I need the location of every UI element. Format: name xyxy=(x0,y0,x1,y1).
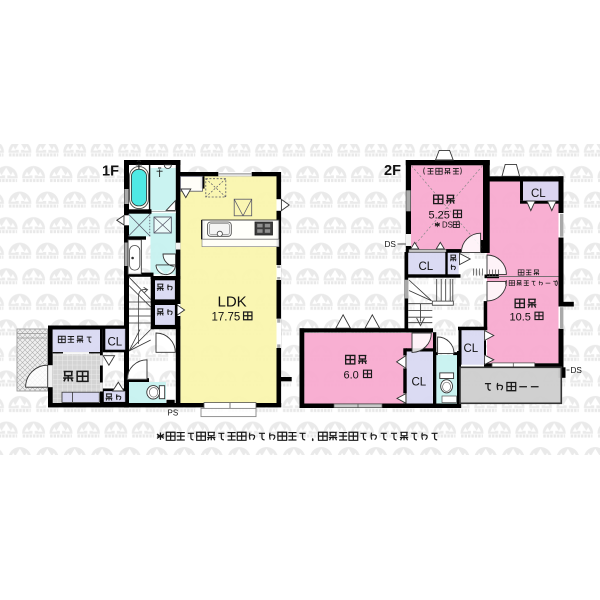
svg-text:5.25: 5.25 xyxy=(429,209,450,221)
svg-text:LDK: LDK xyxy=(218,294,247,311)
svg-text:17.75: 17.75 xyxy=(212,312,241,324)
svg-text:PS: PS xyxy=(168,409,179,418)
svg-text:DS: DS xyxy=(385,240,397,249)
svg-text:DS: DS xyxy=(571,366,583,375)
svg-text:CL: CL xyxy=(108,337,123,349)
svg-text:1F: 1F xyxy=(102,164,119,180)
svg-text:CL: CL xyxy=(412,377,427,389)
svg-text:CL: CL xyxy=(531,188,546,200)
svg-text:2F: 2F xyxy=(384,163,401,179)
svg-text:10.5: 10.5 xyxy=(510,311,531,323)
svg-text:CL: CL xyxy=(464,343,479,355)
svg-text:DS: DS xyxy=(442,221,453,230)
svg-text:CL: CL xyxy=(419,261,434,273)
svg-text:6.0: 6.0 xyxy=(344,369,359,381)
